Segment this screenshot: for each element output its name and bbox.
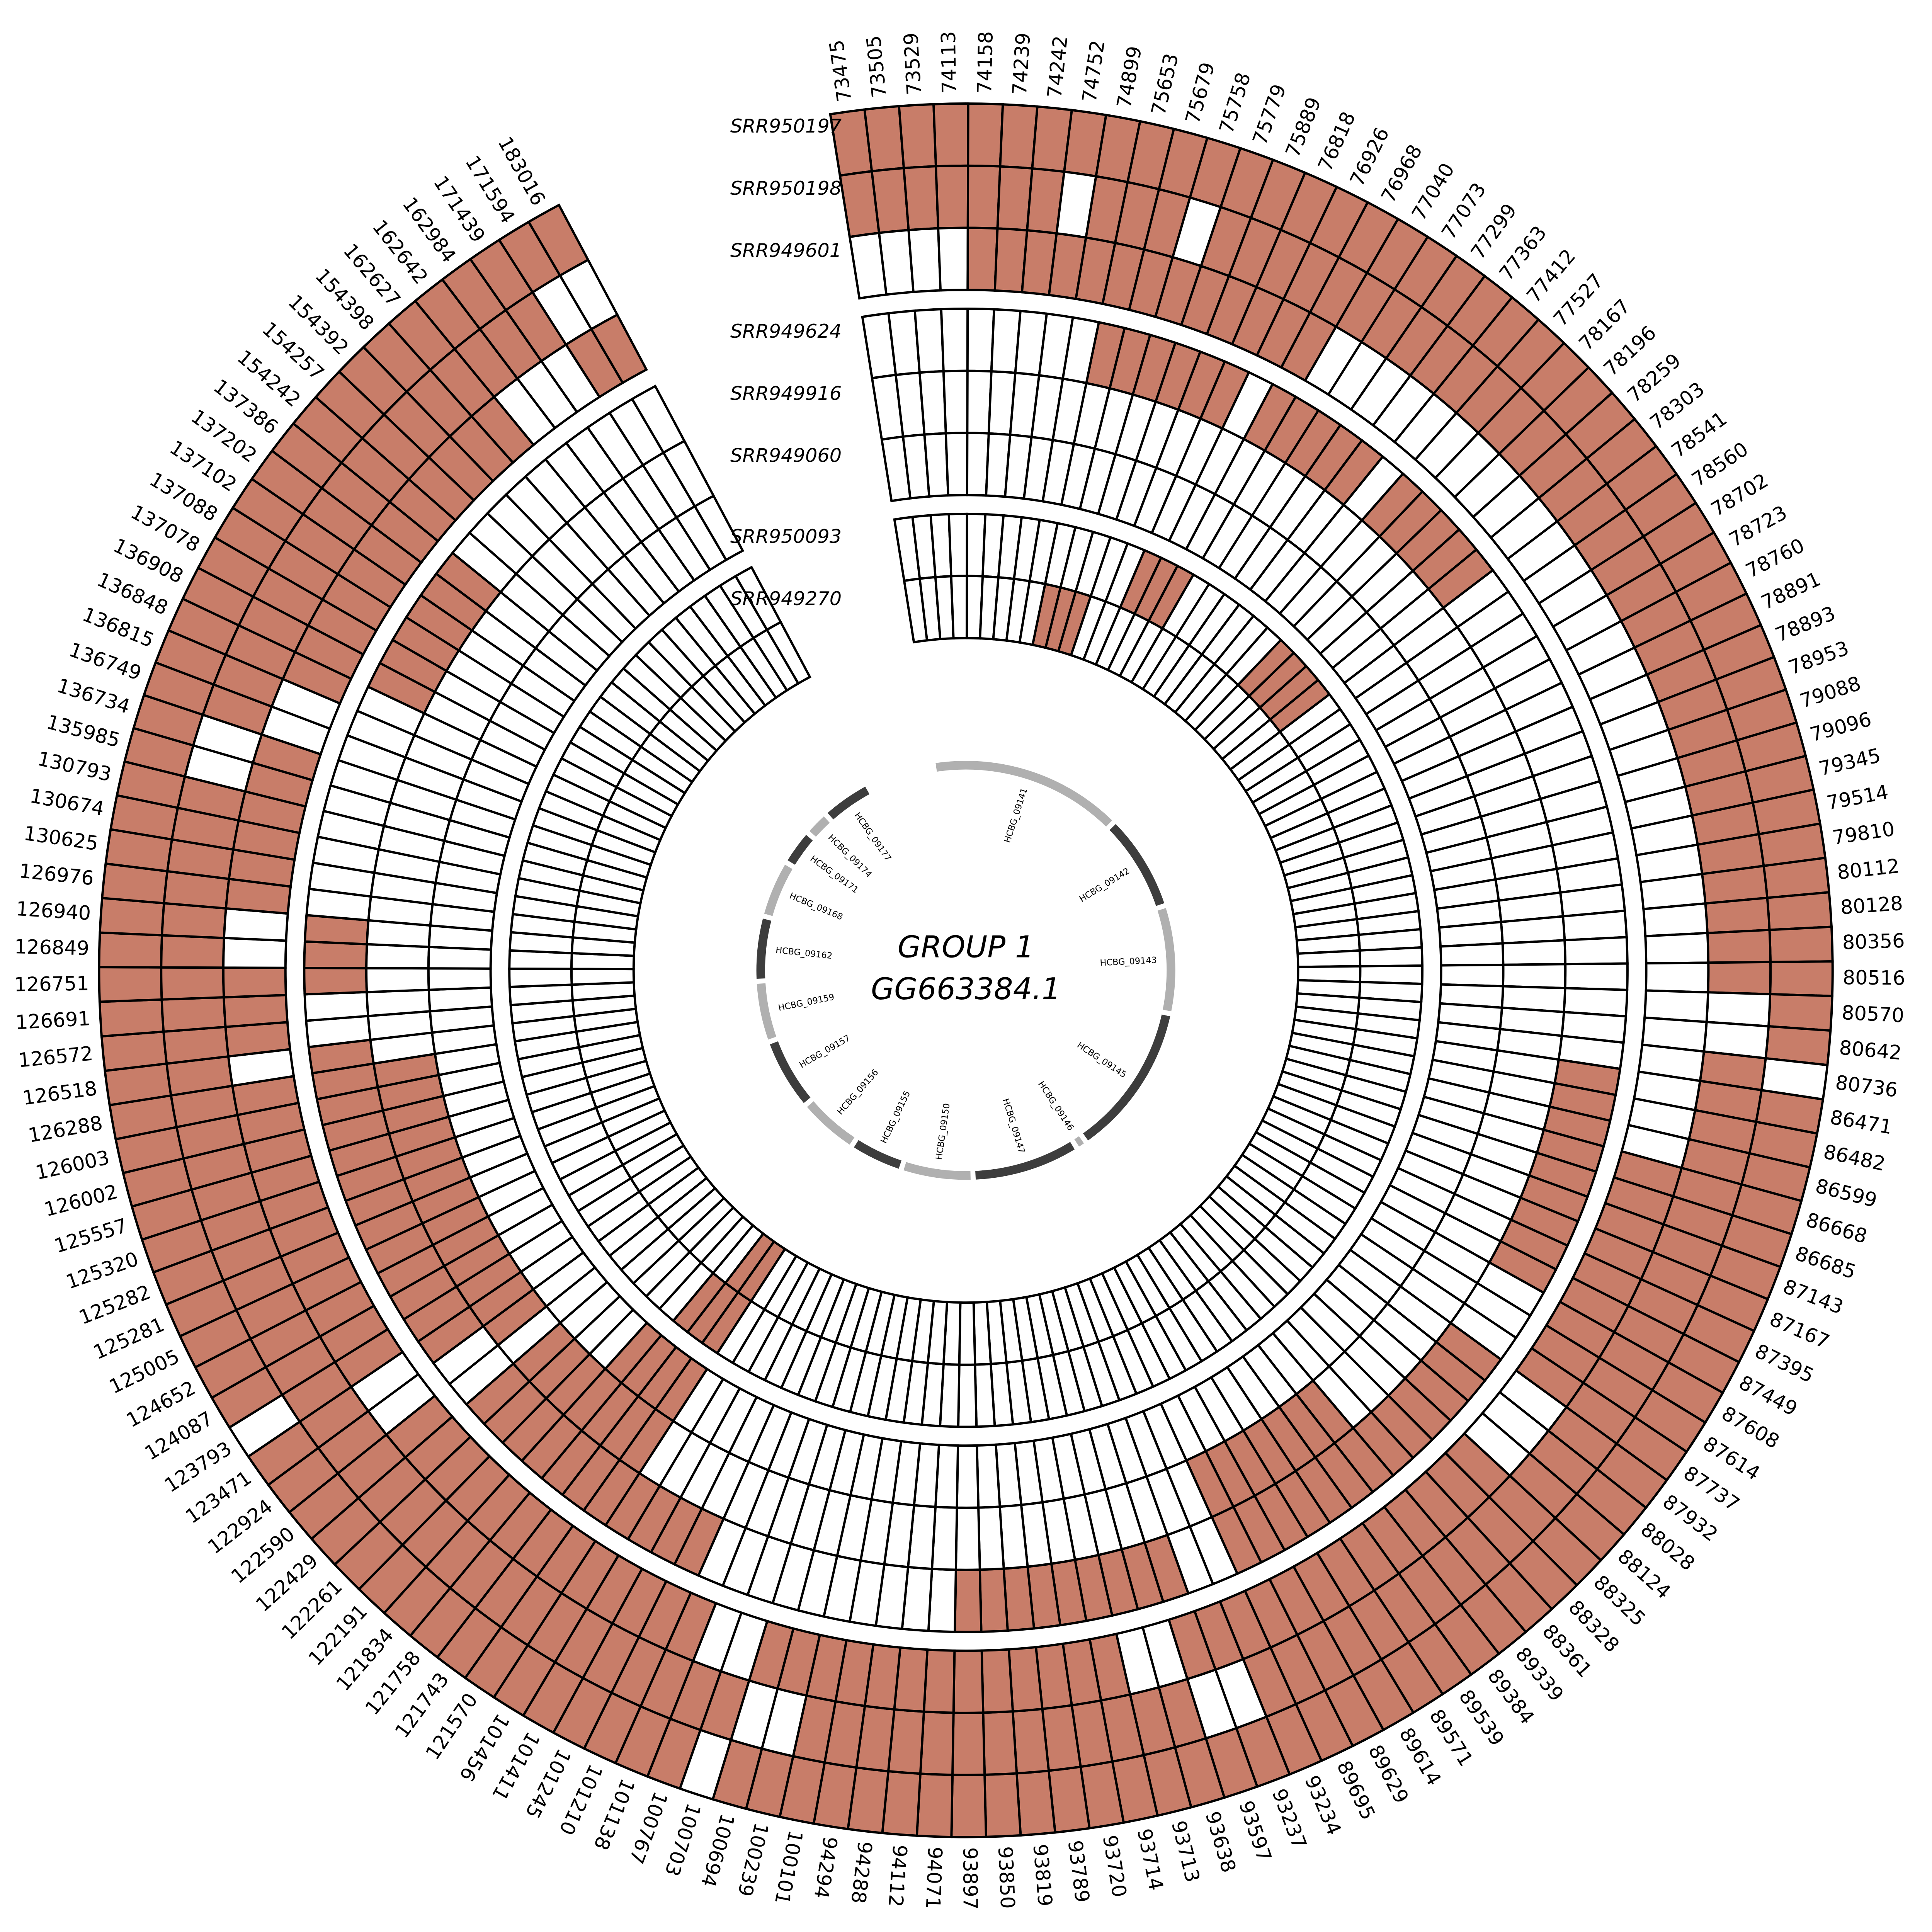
gene-arc xyxy=(1162,909,1171,1010)
heatmap-cell xyxy=(968,166,1000,228)
heatmap-cell xyxy=(99,932,162,967)
heatmap-cell xyxy=(1770,961,1833,996)
gene-label: HCBG_09145 xyxy=(1075,1040,1128,1080)
heatmap-cell xyxy=(1360,966,1422,984)
heatmap-cell xyxy=(977,1445,1000,1508)
heatmap-cell xyxy=(99,967,162,1002)
position-label: 126976 xyxy=(18,859,95,890)
heatmap-cell xyxy=(1705,898,1769,933)
position-label: 74239 xyxy=(1008,32,1035,96)
position-label: 80516 xyxy=(1843,966,1905,990)
position-label: 126691 xyxy=(15,1007,91,1034)
position-label: 100694 xyxy=(697,1811,739,1889)
heatmap-cell xyxy=(429,988,492,1011)
heatmap-cell xyxy=(968,228,997,291)
heatmap-cell xyxy=(974,1302,991,1364)
heatmap-cell xyxy=(509,969,571,987)
gene-arc xyxy=(761,983,772,1038)
heatmap-cell xyxy=(1764,858,1829,898)
position-label: 93597 xyxy=(1235,1798,1276,1864)
heatmap-cell xyxy=(975,1364,995,1427)
gene-arc xyxy=(761,920,767,978)
heatmap-cell xyxy=(571,969,634,985)
position-label: 94112 xyxy=(884,1844,912,1908)
position-label: 126518 xyxy=(21,1077,99,1110)
gene-label: HCBG_09159 xyxy=(777,992,835,1013)
heatmap-cell xyxy=(304,992,368,1021)
position-label: 86482 xyxy=(1821,1140,1887,1175)
position-label: 75653 xyxy=(1147,51,1183,117)
track-row-label: SRR949916 xyxy=(730,382,842,405)
heatmap-cell xyxy=(904,166,938,230)
gene-arc xyxy=(774,1043,807,1100)
heatmap-cell xyxy=(1501,916,1565,943)
heatmap-cell xyxy=(1298,951,1360,967)
heatmap-cell xyxy=(946,433,968,495)
position-label: 93819 xyxy=(1029,1843,1056,1907)
position-label: 100239 xyxy=(733,1820,773,1898)
position-label: 130793 xyxy=(36,747,114,786)
gene-arc xyxy=(856,1144,900,1165)
heatmap-cell xyxy=(102,1032,167,1071)
heatmap-cell xyxy=(163,1027,228,1064)
heatmap-cell xyxy=(934,104,968,166)
heatmap-cell xyxy=(967,371,991,434)
position-label: 126003 xyxy=(33,1146,111,1184)
position-label: 78953 xyxy=(1785,636,1852,679)
position-label: 135985 xyxy=(44,710,122,752)
position-label: 79096 xyxy=(1808,707,1874,746)
gene-label: HCBG_09157 xyxy=(798,1033,852,1070)
heatmap-cell xyxy=(908,228,940,292)
heatmap-cell xyxy=(1563,911,1627,940)
heatmap-cell xyxy=(980,1569,1008,1632)
track-row-label: SRR949601 xyxy=(730,239,842,262)
track-row-label: SRR949270 xyxy=(730,587,842,610)
heatmap-cell xyxy=(1360,947,1422,966)
position-label: 126288 xyxy=(27,1111,104,1147)
gene-arc xyxy=(813,820,827,834)
gene-arc xyxy=(769,867,789,915)
position-label: 75889 xyxy=(1281,94,1325,160)
position-label: 93713 xyxy=(1167,1818,1204,1884)
position-label: 75758 xyxy=(1215,70,1255,136)
position-label: 80736 xyxy=(1834,1071,1899,1102)
heatmap-cell xyxy=(1440,943,1503,965)
heatmap-cell xyxy=(1004,1567,1034,1631)
heatmap-cell xyxy=(920,371,946,435)
position-label: 126002 xyxy=(42,1180,120,1221)
heatmap-cell xyxy=(304,942,367,968)
heatmap-cell xyxy=(223,968,286,997)
heatmap-cell xyxy=(1565,937,1628,964)
heatmap-cell xyxy=(1769,994,1832,1031)
heatmap-cell xyxy=(899,104,936,168)
heatmap-cell xyxy=(161,968,224,1000)
heatmap-cell xyxy=(1017,1771,1055,1835)
position-label: 80642 xyxy=(1838,1036,1903,1064)
gene-arc xyxy=(1085,1015,1166,1137)
heatmap-cell xyxy=(224,995,287,1027)
position-label: 130625 xyxy=(22,821,100,855)
heatmap-cell xyxy=(936,166,968,228)
position-label: 80112 xyxy=(1836,854,1901,884)
heatmap-cell xyxy=(1013,1709,1049,1774)
circular-heatmap: HCBG_09141HCBG_09142HCBG_09143HCBG_09145… xyxy=(0,0,1932,1932)
heatmap-cell xyxy=(951,1775,986,1837)
gene-label: HCBG_09150 xyxy=(934,1103,952,1161)
gene-arc xyxy=(1077,1140,1081,1143)
heatmap-cell xyxy=(1503,964,1565,988)
position-label: 86668 xyxy=(1803,1208,1870,1248)
position-label: 74242 xyxy=(1043,35,1072,99)
center-title: GROUP 1 xyxy=(898,930,1034,965)
gene-label: HCBG_09141 xyxy=(1002,787,1029,844)
heatmap-cells-layer xyxy=(99,104,1832,1837)
position-label: 86599 xyxy=(1813,1174,1879,1212)
heatmap-cell xyxy=(367,990,430,1016)
heatmap-cell xyxy=(304,968,367,994)
position-label: 126751 xyxy=(14,972,89,996)
heatmap-cell xyxy=(944,371,968,434)
heatmap-cell xyxy=(1767,892,1832,930)
heatmap-cell xyxy=(1646,963,1709,992)
position-label: 93789 xyxy=(1064,1839,1094,1904)
position-label: 80570 xyxy=(1841,1001,1905,1027)
gene-label: HCBG_09142 xyxy=(1078,866,1131,904)
position-label: 93720 xyxy=(1099,1833,1131,1899)
circular-presence-absence-plot: HCBG_09141HCBG_09142HCBG_09143HCBG_09145… xyxy=(0,0,1932,1932)
position-label: 100703 xyxy=(660,1801,705,1879)
gene-label: HCBG_09146 xyxy=(1036,1080,1076,1133)
position-label: 79345 xyxy=(1817,744,1883,780)
position-label: 86471 xyxy=(1828,1105,1894,1138)
heatmap-cell xyxy=(956,1508,980,1570)
heatmap-cell xyxy=(983,1711,1017,1775)
heatmap-cell xyxy=(978,1507,1004,1570)
position-label: 86685 xyxy=(1793,1242,1859,1284)
heatmap-cell xyxy=(915,309,944,372)
center-subtitle: GG663384.1 xyxy=(871,972,1061,1007)
gene-label: HCBG_09156 xyxy=(835,1068,880,1117)
position-label: 73505 xyxy=(862,34,891,99)
heatmap-cell xyxy=(917,1774,952,1837)
heatmap-cell xyxy=(429,968,491,990)
heatmap-cell xyxy=(161,935,224,968)
heatmap-cell xyxy=(941,309,968,371)
heatmap-cell xyxy=(1708,962,1770,994)
track-row-label: SRR950197 xyxy=(730,115,842,137)
gene-label: HCBG_09168 xyxy=(788,891,844,922)
position-label: 80356 xyxy=(1842,929,1905,954)
position-label: 93850 xyxy=(994,1846,1019,1909)
position-label: 79810 xyxy=(1831,817,1896,849)
heatmap-cell xyxy=(1009,1647,1043,1711)
position-label: 126572 xyxy=(17,1042,94,1071)
heatmap-cell xyxy=(924,1650,954,1713)
position-label: 74158 xyxy=(973,31,997,94)
position-label: 73529 xyxy=(900,32,926,96)
heatmap-cell xyxy=(938,228,968,291)
heatmap-cell xyxy=(951,576,967,638)
position-label: 79514 xyxy=(1825,781,1890,815)
heatmap-cell xyxy=(872,168,908,233)
heatmap-cell xyxy=(100,898,164,935)
position-label: 125557 xyxy=(52,1214,130,1257)
heatmap-cell xyxy=(223,938,286,968)
track-row-label: SRR949624 xyxy=(730,320,842,342)
position-label: 94294 xyxy=(810,1835,842,1900)
heatmap-cell xyxy=(1769,927,1832,962)
position-label: 74899 xyxy=(1112,44,1146,110)
position-label: 80128 xyxy=(1840,892,1903,919)
track-row-label: SRR950093 xyxy=(730,525,842,548)
position-label: 136734 xyxy=(54,674,133,718)
heatmap-cell xyxy=(968,104,1003,167)
position-label: 78893 xyxy=(1772,602,1838,646)
gene-arc xyxy=(905,1166,971,1175)
position-label: 126940 xyxy=(15,897,92,925)
position-label: 94288 xyxy=(847,1840,876,1905)
track-row-label: SRR950198 xyxy=(730,177,842,199)
heatmap-cell xyxy=(959,1303,975,1365)
heatmap-cell xyxy=(949,514,967,576)
heatmap-cell xyxy=(985,1773,1020,1837)
position-label: 126849 xyxy=(14,935,89,960)
position-label: 74752 xyxy=(1078,39,1109,104)
position-label: 100101 xyxy=(770,1828,807,1906)
heatmap-cell xyxy=(510,985,573,1005)
heatmap-cell xyxy=(954,1651,983,1713)
heatmap-cell xyxy=(968,309,994,371)
heatmap-cell xyxy=(952,1713,985,1775)
position-label: 87167 xyxy=(1766,1308,1833,1353)
gene-ring-layer xyxy=(761,765,1171,1175)
heatmap-cell xyxy=(366,968,429,992)
heatmap-cell xyxy=(955,1570,981,1632)
heatmap-cell xyxy=(162,997,226,1032)
gene-label: HCBG_09162 xyxy=(775,945,833,961)
heatmap-cell xyxy=(957,1446,979,1508)
heatmap-cell xyxy=(864,106,904,171)
heatmap-cell xyxy=(366,944,429,969)
position-label: 93234 xyxy=(1300,1772,1346,1838)
gene-label: HCBG_09177 xyxy=(852,811,893,863)
position-label: 93714 xyxy=(1133,1827,1168,1892)
position-label: 93897 xyxy=(959,1847,982,1910)
gene-label: HCBG_09147 xyxy=(1000,1097,1027,1155)
position-label: 75679 xyxy=(1181,60,1219,126)
heatmap-cell xyxy=(924,433,948,496)
heatmap-cell xyxy=(920,1712,954,1775)
position-label: 93237 xyxy=(1268,1786,1311,1852)
heatmap-cell xyxy=(1503,940,1565,965)
heatmap-cell xyxy=(100,1000,163,1036)
heatmap-cell xyxy=(1645,933,1708,963)
position-label: 87143 xyxy=(1780,1275,1847,1318)
heatmap-cell xyxy=(1708,930,1770,963)
heatmap-cell xyxy=(982,1650,1013,1713)
heatmap-cell xyxy=(1000,104,1037,168)
heatmap-cell xyxy=(1643,903,1708,936)
position-label: 93638 xyxy=(1201,1809,1240,1875)
position-label: 73475 xyxy=(825,38,856,103)
heatmap-cell xyxy=(1441,965,1503,986)
gene-label: HCBG_09143 xyxy=(1100,955,1157,968)
gene-arc xyxy=(1113,827,1160,905)
position-label: 75779 xyxy=(1248,81,1291,148)
position-label: 74113 xyxy=(937,31,961,94)
heatmap-cell xyxy=(1565,964,1627,990)
gene-arc xyxy=(791,838,810,862)
position-label: 94071 xyxy=(922,1846,947,1910)
heatmap-cell xyxy=(958,1365,976,1427)
heatmap-cell xyxy=(1707,992,1770,1026)
position-label: 130674 xyxy=(28,784,106,820)
position-label: 79088 xyxy=(1797,672,1864,713)
gene-label: HCBG_09155 xyxy=(879,1089,912,1145)
track-row-label: SRR949060 xyxy=(730,444,842,467)
